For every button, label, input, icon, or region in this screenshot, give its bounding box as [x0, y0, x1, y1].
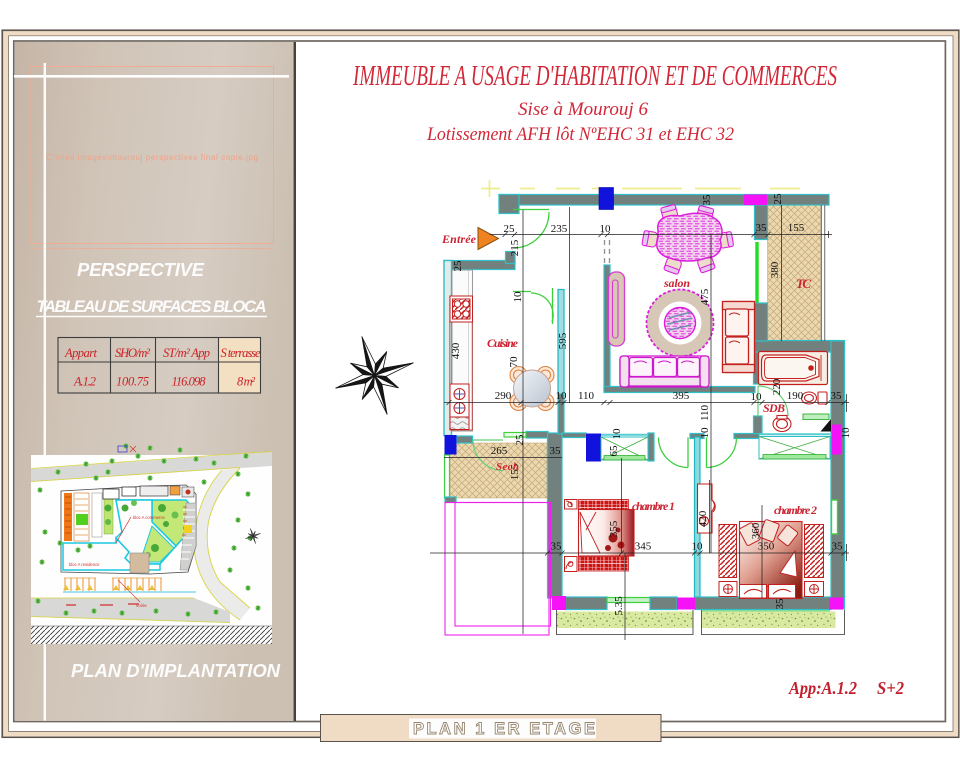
svg-text:380: 380	[769, 261, 781, 278]
svg-text:420: 420	[697, 510, 709, 527]
svg-text:PERSPECTIVE: PERSPECTIVE	[77, 259, 205, 280]
svg-text:116.098: 116.098	[172, 375, 207, 389]
svg-text:110: 110	[699, 404, 711, 421]
svg-text:110: 110	[578, 390, 595, 402]
svg-text:265: 265	[491, 445, 508, 457]
svg-text:345: 345	[635, 541, 652, 553]
svg-text:395: 395	[673, 390, 690, 402]
svg-text:190: 190	[787, 390, 804, 402]
svg-text:35: 35	[832, 541, 844, 553]
svg-text:475: 475	[699, 288, 711, 305]
svg-text:10: 10	[512, 291, 524, 303]
svg-text:220: 220	[771, 378, 783, 395]
svg-text:10: 10	[840, 427, 852, 439]
svg-text:SDB: SDB	[763, 401, 785, 415]
svg-text:Sech: Sech	[496, 461, 519, 473]
svg-text:35: 35	[774, 598, 786, 610]
svg-text:290: 290	[495, 390, 512, 402]
svg-text:App:A.1.2: App:A.1.2	[788, 678, 857, 698]
svg-text:10: 10	[600, 223, 612, 235]
svg-text:430: 430	[450, 342, 462, 359]
svg-text:8 m²: 8 m²	[237, 375, 255, 389]
svg-text:25: 25	[452, 260, 464, 272]
svg-text:voirie: voirie	[136, 603, 147, 608]
svg-text:SHO/m²: SHO/m²	[115, 346, 150, 360]
svg-text:10: 10	[556, 390, 568, 402]
svg-text:215: 215	[509, 239, 521, 256]
svg-text:C:\mes images\mourouj perspect: C:\mes images\mourouj perspectives final…	[46, 153, 258, 162]
svg-text:10: 10	[611, 428, 623, 440]
svg-text:25: 25	[514, 434, 526, 446]
svg-text:10: 10	[699, 427, 711, 439]
svg-text:155: 155	[788, 222, 805, 234]
svg-text:S+2: S+2	[877, 678, 904, 698]
svg-text:IMMEUBLE A USAGE D'HABITATION: IMMEUBLE A USAGE D'HABITATION ET DE COMM…	[352, 61, 837, 92]
svg-text:10: 10	[692, 541, 704, 553]
svg-text:A.1.2: A.1.2	[73, 375, 96, 389]
svg-text:595: 595	[557, 332, 569, 349]
svg-text:70: 70	[508, 356, 520, 368]
svg-text:Entrée: Entrée	[441, 232, 477, 246]
svg-text:350: 350	[758, 541, 775, 553]
svg-text:10: 10	[751, 391, 763, 403]
svg-text:65: 65	[608, 445, 620, 457]
svg-text:5.35: 5.35	[613, 596, 625, 616]
svg-text:TABLEAU DE SURFACES BLOCA: TABLEAU DE SURFACES BLOCA	[37, 298, 267, 316]
svg-text:35: 35	[550, 445, 562, 457]
svg-text:25: 25	[772, 193, 784, 205]
svg-text:salon: salon	[663, 276, 690, 290]
svg-text:100.75: 100.75	[116, 375, 149, 389]
svg-text:Lotissement AFH lôt NºEHC 31 e: Lotissement AFH lôt NºEHC 31 et EHC 32	[426, 124, 734, 145]
svg-text:355: 355	[608, 520, 620, 537]
svg-text:35: 35	[701, 194, 713, 206]
svg-text:chambre 1: chambre 1	[632, 499, 675, 513]
svg-text:PLAN D'IMPLANTATION: PLAN D'IMPLANTATION	[71, 660, 281, 681]
svg-text:Appart: Appart	[64, 346, 98, 360]
svg-text:Sise à Mourouj 6: Sise à Mourouj 6	[518, 99, 648, 120]
svg-text:TC: TC	[796, 276, 811, 291]
svg-text:35: 35	[756, 222, 768, 234]
svg-text:25: 25	[504, 223, 516, 235]
svg-text:bloc A residence: bloc A residence	[69, 562, 100, 567]
svg-text:PLAN 1 ER ETAGE: PLAN 1 ER ETAGE	[413, 720, 595, 738]
svg-text:S terrasse: S terrasse	[221, 346, 261, 360]
svg-text:bloc A commerce: bloc A commerce	[133, 515, 166, 520]
svg-text:Cuisine: Cuisine	[487, 336, 519, 350]
svg-text:235: 235	[551, 223, 568, 235]
svg-text:35: 35	[551, 541, 563, 553]
svg-text:chambre 2: chambre 2	[774, 503, 817, 517]
svg-text:360: 360	[750, 522, 762, 539]
svg-text:35: 35	[831, 390, 843, 402]
svg-text:ST/m² App: ST/m² App	[163, 346, 210, 360]
